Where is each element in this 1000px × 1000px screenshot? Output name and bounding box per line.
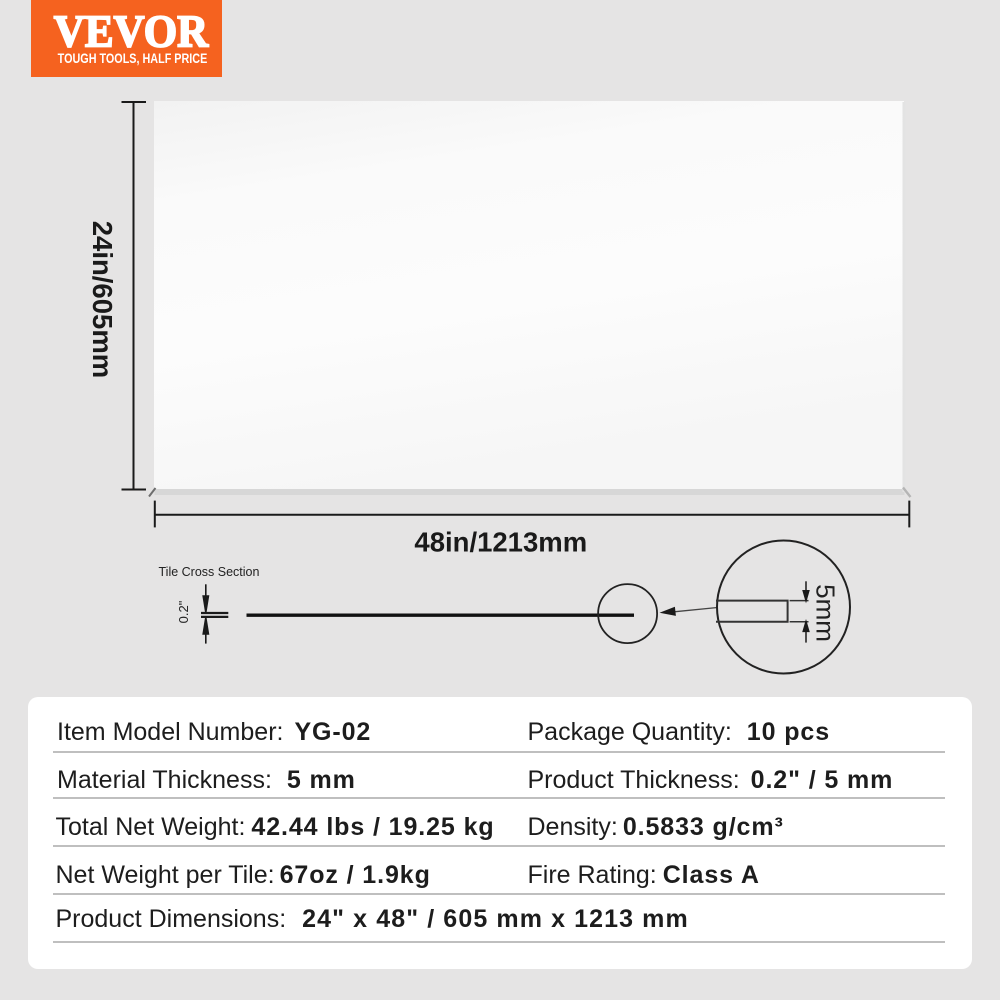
svg-text:5mm: 5mm [811, 584, 841, 642]
svg-text:48in/1213mm: 48in/1213mm [414, 527, 587, 558]
svg-text:24in/605mm: 24in/605mm [87, 221, 118, 378]
svg-text:0.2": 0.2" [176, 600, 191, 623]
svg-text:Tile Cross Section: Tile Cross Section [159, 565, 260, 579]
